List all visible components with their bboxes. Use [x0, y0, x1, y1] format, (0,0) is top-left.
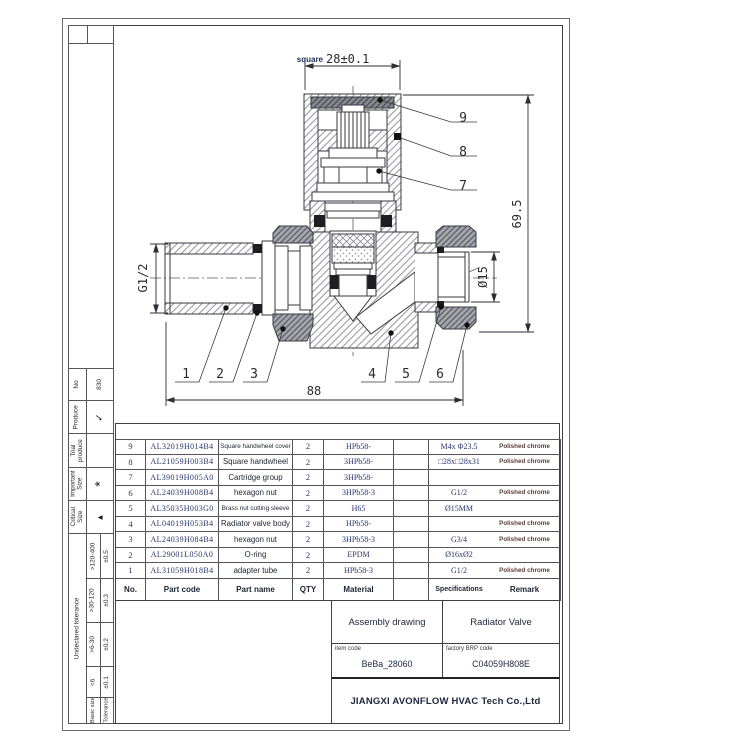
header-extra: [394, 579, 429, 602]
part-extra: [394, 439, 429, 455]
item-code-cell: item code BeBa_28060: [331, 643, 443, 678]
part-extra: [394, 517, 429, 533]
tolerance-value-4: ±0.1: [100, 666, 114, 698]
valve-body-section: [310, 231, 440, 348]
callout-9: 9: [459, 111, 467, 126]
part-name: hexagon nut: [219, 532, 293, 548]
part-qty: 2: [293, 501, 324, 517]
part-spec: □28x□28x31: [429, 455, 489, 471]
part-code: AL35035H003G0: [146, 501, 219, 517]
callout-7: 7: [459, 179, 467, 194]
part-name: hexagon nut: [219, 486, 293, 502]
part-no: 5: [116, 501, 146, 517]
tolerance-band-3: >6-30: [86, 622, 101, 667]
part-extra: [394, 563, 429, 579]
drawing-type-cell: Assembly drawing: [331, 600, 443, 644]
part-qty: 2: [293, 548, 324, 564]
part-material: HPb58-: [324, 439, 394, 455]
spline-stem: [341, 112, 365, 148]
erp-code-value: C04059H808E: [472, 659, 530, 669]
header-material: Material: [324, 579, 394, 602]
part-extra: [394, 501, 429, 517]
company-cell: JIANGXI AVONFLOW HVAC Tech Co.,Ltd: [331, 677, 560, 724]
part-qty: 2: [293, 563, 324, 579]
product-name: Radiator Valve: [470, 617, 532, 628]
header-part-code: Part code: [146, 579, 219, 602]
part-material: HPb58-3: [324, 563, 394, 579]
part-extra: [394, 470, 429, 486]
part-no: 2: [116, 548, 146, 564]
parts-table: 9 AL32019H014B4 Square handwheel cover 2…: [115, 423, 560, 602]
drawing-sheet-page: No 830 Produce ✓ Trial produce Important…: [0, 0, 750, 750]
sidebar-trial-label: Trial produce: [68, 433, 87, 468]
callout-1: 1: [182, 367, 190, 382]
part-qty: 2: [293, 439, 324, 455]
inlet-pipe-section: [165, 226, 313, 341]
cartridge-group-section: [312, 148, 394, 201]
tolerance-band-1: >120-400: [86, 533, 101, 579]
part-material: 3HPb58-3: [324, 486, 394, 502]
square-dim-label: square: [297, 55, 324, 64]
diameter-dim-value: Ø15: [476, 266, 490, 288]
basic-size-label: Basic size: [86, 697, 101, 724]
part-name: Square handwheel cover: [219, 439, 293, 455]
part-remark: Polished chrome: [489, 486, 561, 502]
drawing-type: Assembly drawing: [348, 617, 425, 628]
part-name: Cartridge group: [219, 470, 293, 486]
part-code: AL32019H014B4: [146, 439, 219, 455]
sidebar-important-symbol: *: [86, 467, 114, 501]
sidebar-critical-symbol: ▲: [86, 500, 114, 534]
parts-table-spare-row: [116, 424, 561, 440]
callout-4: 4: [368, 367, 376, 382]
sidebar-no-label: No: [68, 368, 87, 401]
part-no: 3: [116, 532, 146, 548]
callout-8: 8: [459, 145, 467, 160]
part-remark: Polished chrome: [489, 532, 561, 548]
erp-code-label: factory BRP code: [446, 646, 493, 652]
part-extra: [394, 548, 429, 564]
part-extra: [394, 455, 429, 471]
compression-nut-top: [436, 226, 476, 247]
part-spec: [429, 517, 489, 533]
part-remark: Polished chrome: [489, 517, 561, 533]
part-spec: G1/2: [429, 563, 489, 579]
sidebar-top-cell-a: [68, 25, 88, 44]
tolerance-band-4: <6: [86, 666, 101, 698]
part-material: 3HPb58-3: [324, 532, 394, 548]
part-remark: Polished chrome: [489, 455, 561, 471]
part-spec: Ø16xØ2: [429, 548, 489, 564]
part-code: AL39019H005A0: [146, 470, 219, 486]
undeclared-tolerance-label: Undeclared tolerance: [68, 533, 87, 724]
part-qty: 2: [293, 532, 324, 548]
company-name: JIANGXI AVONFLOW HVAC Tech Co.,Ltd: [350, 696, 540, 707]
part-spec: Ø15MM: [429, 501, 489, 517]
cutting-sleeve-top: [437, 247, 444, 253]
compression-nut-bottom: [436, 307, 476, 329]
thread-dim-value: G1/2: [136, 264, 150, 293]
part-code: AL29001L050A0: [146, 548, 219, 564]
erp-code-cell: factory BRP code C04059H808E: [442, 643, 560, 678]
header-remark: Remark: [489, 579, 561, 602]
part-remark: [489, 548, 561, 564]
part-extra: [394, 486, 429, 502]
part-name: Square handwheel: [219, 455, 293, 471]
callout-3: 3: [250, 367, 258, 382]
outlet-tube: [438, 252, 469, 302]
item-code-label: item code: [335, 646, 361, 652]
part-remark: Polished chrome: [489, 439, 561, 455]
product-name-cell: Radiator Valve: [442, 600, 560, 644]
title-block-empty-cell: [115, 600, 332, 724]
union-nut-top: [273, 226, 313, 243]
part-code: AL24039H008B4: [146, 486, 219, 502]
part-qty: 2: [293, 486, 324, 502]
sidebar-critical-label: Critical Size: [68, 500, 87, 534]
callout-6: 6: [436, 367, 444, 382]
part-material: HPb58-: [324, 517, 394, 533]
height-dim-value: 69.5: [510, 200, 524, 229]
tolerance-band-2: >30-120: [86, 578, 101, 623]
part-no: 6: [116, 486, 146, 502]
part-no: 4: [116, 517, 146, 533]
header-spec: Specifications: [429, 579, 489, 602]
part-no: 7: [116, 470, 146, 486]
header-part-name: Part name: [219, 579, 293, 602]
length-dim-value: 88: [307, 384, 321, 398]
part-qty: 2: [293, 470, 324, 486]
header-qty: QTY: [293, 579, 324, 602]
square-dim-value: 28±0.1: [326, 52, 369, 66]
part-no: 9: [116, 439, 146, 455]
valve-assembly-drawing: square 28±0.1 69.5 Ø15 G1/2 88: [110, 30, 560, 440]
tolerance-label: Tolerance: [100, 697, 114, 724]
part-remark: [489, 470, 561, 486]
part-code: AL21059H003B4: [146, 455, 219, 471]
header-no: No.: [116, 579, 146, 602]
part-code: AL31059H018B4: [146, 563, 219, 579]
tolerance-value-2: ±0.3: [100, 578, 114, 623]
part-no: 1: [116, 563, 146, 579]
part-material: H65: [324, 501, 394, 517]
part-name: O-ring: [219, 548, 293, 564]
part-no: 8: [116, 455, 146, 471]
callout-5: 5: [402, 367, 410, 382]
o-ring-top: [253, 244, 262, 253]
sidebar-produce-label: Produce: [68, 400, 87, 434]
part-material: EPDM: [324, 548, 394, 564]
sidebar-empty-cell: [68, 43, 114, 369]
part-spec: [429, 470, 489, 486]
part-extra: [394, 532, 429, 548]
triangle-icon: ▲: [95, 513, 104, 521]
check-icon: ✓: [94, 413, 105, 421]
part-material: 3HPb58-: [324, 455, 394, 471]
part-qty: 2: [293, 517, 324, 533]
asterisk-icon: *: [92, 481, 108, 486]
part-spec: G1/2: [429, 486, 489, 502]
outlet-fitting-section: [436, 226, 476, 329]
item-code-value: BeBa_28060: [362, 659, 413, 669]
part-name: Brass nut cutting sleeve: [219, 501, 293, 517]
tolerance-value-3: ±0.2: [100, 622, 114, 667]
valve-head-section: [304, 94, 401, 232]
part-name: adapter tube: [219, 563, 293, 579]
union-nut-bottom: [273, 314, 313, 341]
part-code: AL24039H084B4: [146, 532, 219, 548]
sidebar-important-label: Important Size: [68, 467, 87, 501]
callout-2: 2: [216, 367, 224, 382]
part-material: 3HPb58-: [324, 470, 394, 486]
part-remark: [489, 501, 561, 517]
part-spec: G3/4: [429, 532, 489, 548]
part-qty: 2: [293, 455, 324, 471]
part-spec: M4x Φ23.5: [429, 439, 489, 455]
part-name: Radiator valve body: [219, 517, 293, 533]
part-code: AL04019H053B4: [146, 517, 219, 533]
tolerance-value-1: ±0.5: [100, 533, 114, 579]
part-remark: Polished chrome: [489, 563, 561, 579]
